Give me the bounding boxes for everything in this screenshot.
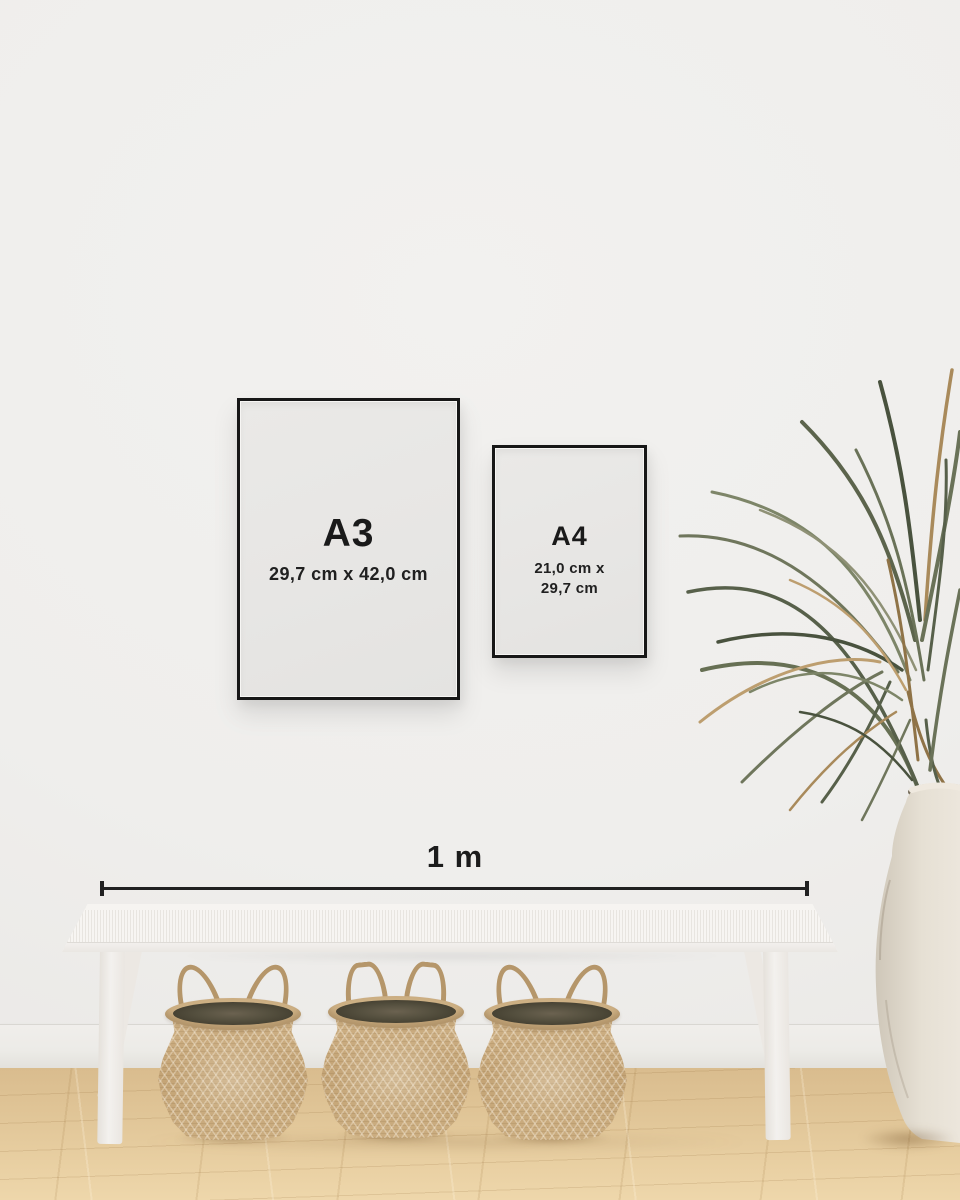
basket-body [158,1014,308,1140]
poster-size-guide-scene: A3 29,7 cm x 42,0 cm A4 21,0 cm x 29,7 c… [0,0,960,1200]
scale-bar-label: 1 m [355,841,555,872]
vase-floor-shadow [852,1126,960,1152]
poster-a3-size-label: A3 [323,514,375,553]
poster-frame-a3: A3 29,7 cm x 42,0 cm [237,398,460,700]
basket-opening [492,1002,612,1025]
poster-a3-text-block: A3 29,7 cm x 42,0 cm [269,514,428,585]
basket-body [477,1014,627,1140]
poster-a4-dimensions-line1: 21,0 cm x [534,559,604,579]
basket-opening [173,1002,293,1025]
scale-bar-right-cap [805,881,809,896]
bench-seat-front-edge [62,942,838,952]
seagrass-basket-left [158,962,308,1147]
scale-bar-left-cap [100,881,104,896]
bench-front-left-leg [97,948,125,1144]
bench-front-right-leg [763,948,791,1140]
scale-bar-line [102,887,808,890]
basket-opening [336,1000,456,1023]
poster-a4-text-block: A4 21,0 cm x 29,7 cm [534,523,604,599]
seagrass-basket-right [477,962,627,1147]
palm-plant-and-vase-illustration [640,340,960,1150]
basket-body [321,1012,471,1138]
poster-a3-dimensions: 29,7 cm x 42,0 cm [269,564,428,585]
poster-a4-size-label: A4 [551,523,588,550]
bench-seat-back-rail [62,904,838,910]
poster-frame-a4: A4 21,0 cm x 29,7 cm [492,445,647,658]
poster-a4-dimensions-line2: 29,7 cm [541,579,598,599]
seagrass-basket-middle [321,960,471,1145]
bench-woven-seat [62,904,838,952]
